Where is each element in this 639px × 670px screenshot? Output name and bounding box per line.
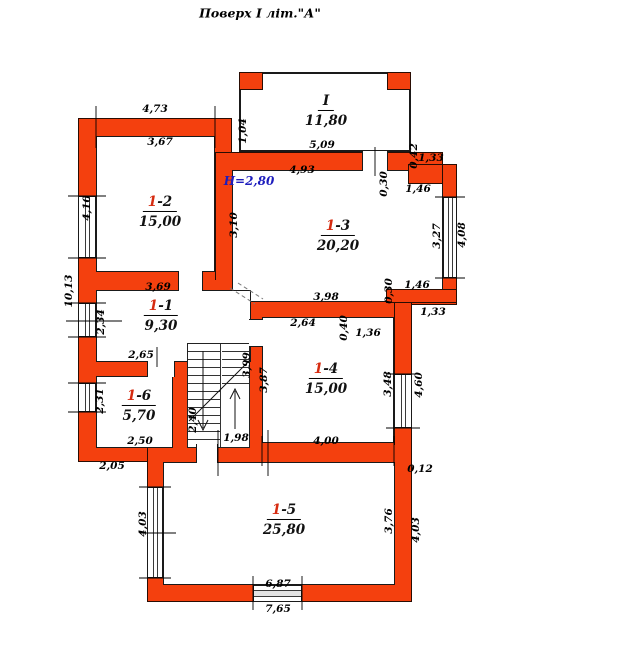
dim-label: 4,10 [81, 195, 93, 221]
ceiling-height-note: Н=2,80 [224, 174, 275, 188]
dim-label: 2,34 [95, 309, 107, 335]
dim-label: 3,27 [431, 223, 443, 249]
dim-label: 3,67 [147, 136, 173, 148]
wall-step-mid-right [386, 289, 457, 303]
room-area: 11,80 [305, 113, 347, 129]
door-porch-to-1-3 [362, 151, 388, 171]
dim-label: 4,73 [142, 103, 168, 115]
floor-plan: Поверх І літ."А" [0, 0, 639, 670]
room-label-I: I 11,80 [305, 91, 347, 129]
dim-label: 3,76 [383, 508, 395, 534]
dim-label: 3,48 [382, 371, 394, 397]
dim-label: 4,00 [313, 435, 339, 447]
dim-label: 10,13 [63, 275, 75, 308]
room-area: 9,30 [145, 318, 178, 334]
room-label-1-3: 1-3 20,20 [317, 216, 359, 254]
dim-label: 2,40 [187, 407, 199, 433]
dim-label: 4,93 [289, 164, 315, 176]
room-area: 15,00 [139, 214, 181, 230]
dim-label: 1,33 [420, 306, 446, 318]
dim-label: 1,36 [355, 327, 381, 339]
door-hall-to-1-4 [249, 319, 263, 347]
dim-label: 3,99 [241, 352, 253, 378]
room-number: 1-2 [143, 195, 177, 212]
window-1-5-left [147, 487, 163, 578]
dim-label: 2,64 [290, 317, 316, 329]
room-label-1-6: 1-6 5,70 [122, 386, 156, 424]
porch-column-right [387, 72, 411, 90]
room-label-1-1: 1-1 9,30 [144, 296, 178, 334]
room-label-1-4: 1-4 15,00 [305, 359, 347, 397]
dim-label: 2,50 [127, 435, 153, 447]
window-glazing [85, 384, 90, 411]
room-area: 25,80 [263, 522, 305, 538]
window-glazing [254, 590, 301, 597]
dim-label: 2,65 [128, 349, 154, 361]
room-area: 5,70 [123, 408, 156, 424]
room-area: 20,20 [317, 238, 359, 254]
dim-label: 3,98 [313, 291, 339, 303]
room-number: 1-6 [122, 389, 156, 406]
dim-label: 3,87 [258, 367, 270, 393]
window-1-3-right [443, 197, 457, 278]
dim-label: 2,05 [99, 460, 125, 472]
dim-label: 3,10 [228, 212, 240, 238]
dim-label: 1,46 [404, 279, 430, 291]
dim-label: 3,69 [145, 281, 171, 293]
dim-label: 4,60 [413, 372, 425, 398]
room-label-1-2: 1-2 15,00 [139, 192, 181, 230]
room-number: I [318, 94, 334, 111]
door-hall-to-1-5 [196, 444, 218, 463]
dim-label: 4,08 [456, 222, 468, 248]
dim-label: 6,87 [265, 578, 291, 590]
dim-label: 4,03 [137, 511, 149, 537]
plan-title: Поверх І літ."А" [199, 6, 321, 21]
dim-label: 2,31 [94, 388, 106, 414]
dim-label: 4,03 [410, 517, 422, 543]
door-1-1-to-1-6 [147, 361, 175, 377]
room-number: 1-4 [309, 362, 343, 379]
window-glazing [401, 375, 406, 427]
room-number: 1-1 [144, 299, 178, 316]
window-glazing [153, 488, 158, 577]
room-area: 15,00 [305, 381, 347, 397]
window-1-1-left [78, 303, 96, 337]
porch-column-left [239, 72, 263, 90]
dim-label: 0,12 [407, 463, 433, 475]
dim-label: 1,33 [418, 152, 444, 164]
dim-label: 0,30 [378, 171, 390, 197]
door-1-2-to-1-1 [178, 271, 203, 291]
room-number: 1-5 [267, 503, 301, 520]
room-label-1-5: 1-5 25,80 [263, 500, 305, 538]
dim-label: 1,04 [237, 118, 249, 144]
dim-label: 1,46 [405, 183, 431, 195]
window-glazing [448, 198, 453, 277]
dim-label: 7,65 [265, 603, 291, 615]
dim-label: 1,98 [223, 432, 249, 444]
dim-label: 5,09 [309, 139, 335, 151]
dim-label: 0,30 [383, 278, 395, 304]
window-1-4-right [394, 374, 412, 428]
dim-label: 0,40 [338, 315, 350, 341]
room-number: 1-3 [321, 219, 355, 236]
window-glazing [85, 304, 90, 336]
